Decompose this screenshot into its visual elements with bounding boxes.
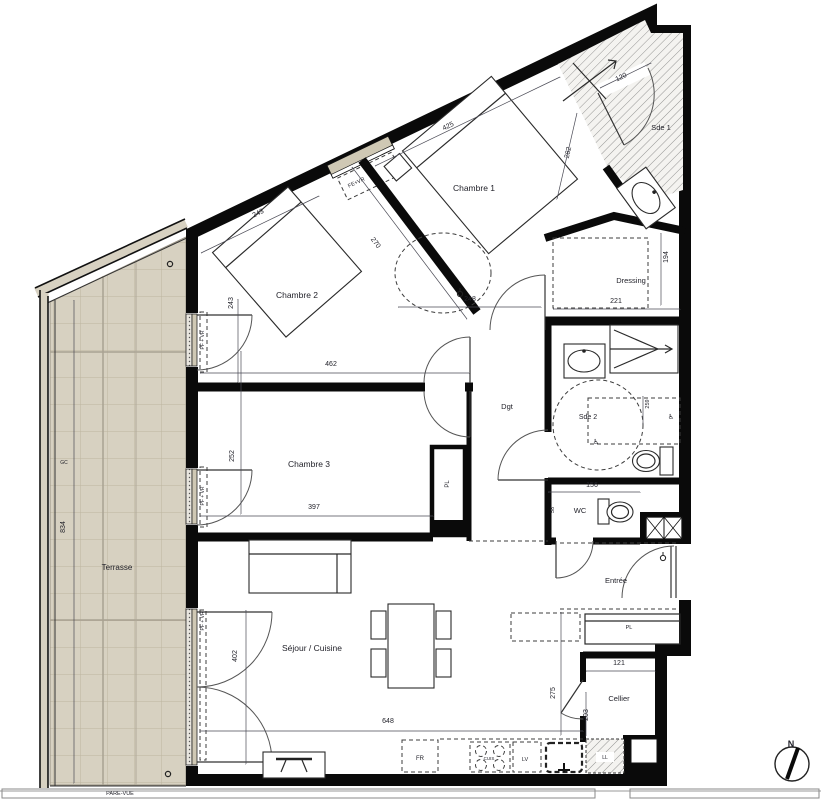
window-label-pfvr-2: PF + VR	[200, 486, 206, 505]
room-label-dgt: Dgt	[501, 402, 514, 411]
sde2-equipment-zone	[588, 398, 680, 444]
terrace-label-parevue: PARE-VUE	[106, 791, 134, 797]
dining-table	[371, 604, 451, 688]
closet-pl-entree	[585, 614, 680, 644]
dim-402: 402	[232, 650, 239, 662]
room-label-chambre2: Chambre 2	[276, 290, 318, 300]
room-label-sde2: Sde 2	[579, 414, 597, 421]
room-label-terrasse: Terrasse	[102, 563, 133, 572]
sofa	[249, 540, 351, 593]
floor-plan-drawing: Chambre 1Chambre 2Chambre 3Sde 1Sde 2Dre…	[0, 0, 821, 800]
window-label-pfvr-3: PF + VR	[200, 611, 206, 630]
terrace-label-gc: GC	[60, 460, 68, 466]
dim-248: 248	[464, 296, 476, 303]
dim-156: 156	[586, 482, 598, 489]
room-label-wc: WC	[574, 506, 587, 515]
dim-58: 58	[550, 507, 556, 513]
kitchen-label-cuis: CUIS	[484, 756, 495, 761]
sde2-fixtures	[553, 325, 680, 475]
closet-label-pl-entree: PL	[626, 625, 633, 631]
dim-221: 221	[610, 298, 622, 305]
dressing-outline	[553, 238, 648, 308]
sde2-toilet	[633, 447, 674, 475]
dim-259: 259	[645, 399, 651, 408]
sde2-washbasin	[564, 344, 605, 378]
dim-203: 203	[583, 709, 590, 721]
wall-light-icon	[660, 552, 665, 561]
compass-label-n: N	[788, 739, 795, 749]
dim-121: 121	[613, 660, 625, 667]
room-label-sejour: Séjour / Cuisine	[282, 643, 342, 653]
wc-toilet	[598, 499, 633, 524]
dim-194: 194	[663, 251, 670, 263]
dim-243-vert: 243	[228, 297, 235, 309]
cellier-label-ll: LL	[602, 755, 608, 761]
room-label-entree: Entrée	[605, 576, 627, 585]
kitchen-label-fr: FR	[416, 756, 425, 762]
zone-boundaries	[469, 541, 677, 609]
dim-648: 648	[382, 718, 394, 725]
room-label-chambre1: Chambre 1	[453, 183, 495, 193]
window-label-pfvr-1: PF + VR	[200, 330, 206, 349]
tv-stand	[263, 752, 325, 778]
dim-397: 397	[308, 504, 320, 511]
window-label-fevr: FE+VR	[347, 177, 366, 190]
room-label-chambre3: Chambre 3	[288, 459, 330, 469]
dim-275: 275	[550, 687, 557, 699]
room-label-sde1: Sde 1	[651, 123, 671, 132]
north-compass	[775, 747, 809, 781]
corner-recess	[623, 735, 663, 782]
turning-circle	[553, 380, 643, 470]
kitchen-label-lv: LV	[522, 757, 529, 763]
duct-shaft	[640, 512, 685, 544]
room-label-cellier: Cellier	[608, 694, 630, 703]
dim-252: 252	[229, 450, 236, 462]
entry-door-opening	[678, 544, 692, 600]
room-label-dressing: Dressing	[616, 276, 646, 285]
sideboard	[511, 613, 580, 641]
closet-pl-corridor	[432, 447, 465, 537]
sde2-shower	[610, 325, 678, 373]
accessibility-icon: ♿	[593, 438, 599, 446]
dim-834: 834	[60, 521, 67, 533]
dim-270: 270	[369, 236, 382, 250]
closet-label-pl-corridor: PL	[445, 480, 451, 488]
dim-462: 462	[325, 361, 337, 368]
floor-plan-sheet: Chambre 1Chambre 2Chambre 3Sde 1Sde 2Dre…	[0, 0, 821, 800]
accessibility-icon: ♿	[668, 413, 674, 421]
dim-282: 282	[564, 146, 573, 159]
kitchen-sink	[546, 743, 582, 772]
terrace	[35, 219, 189, 788]
